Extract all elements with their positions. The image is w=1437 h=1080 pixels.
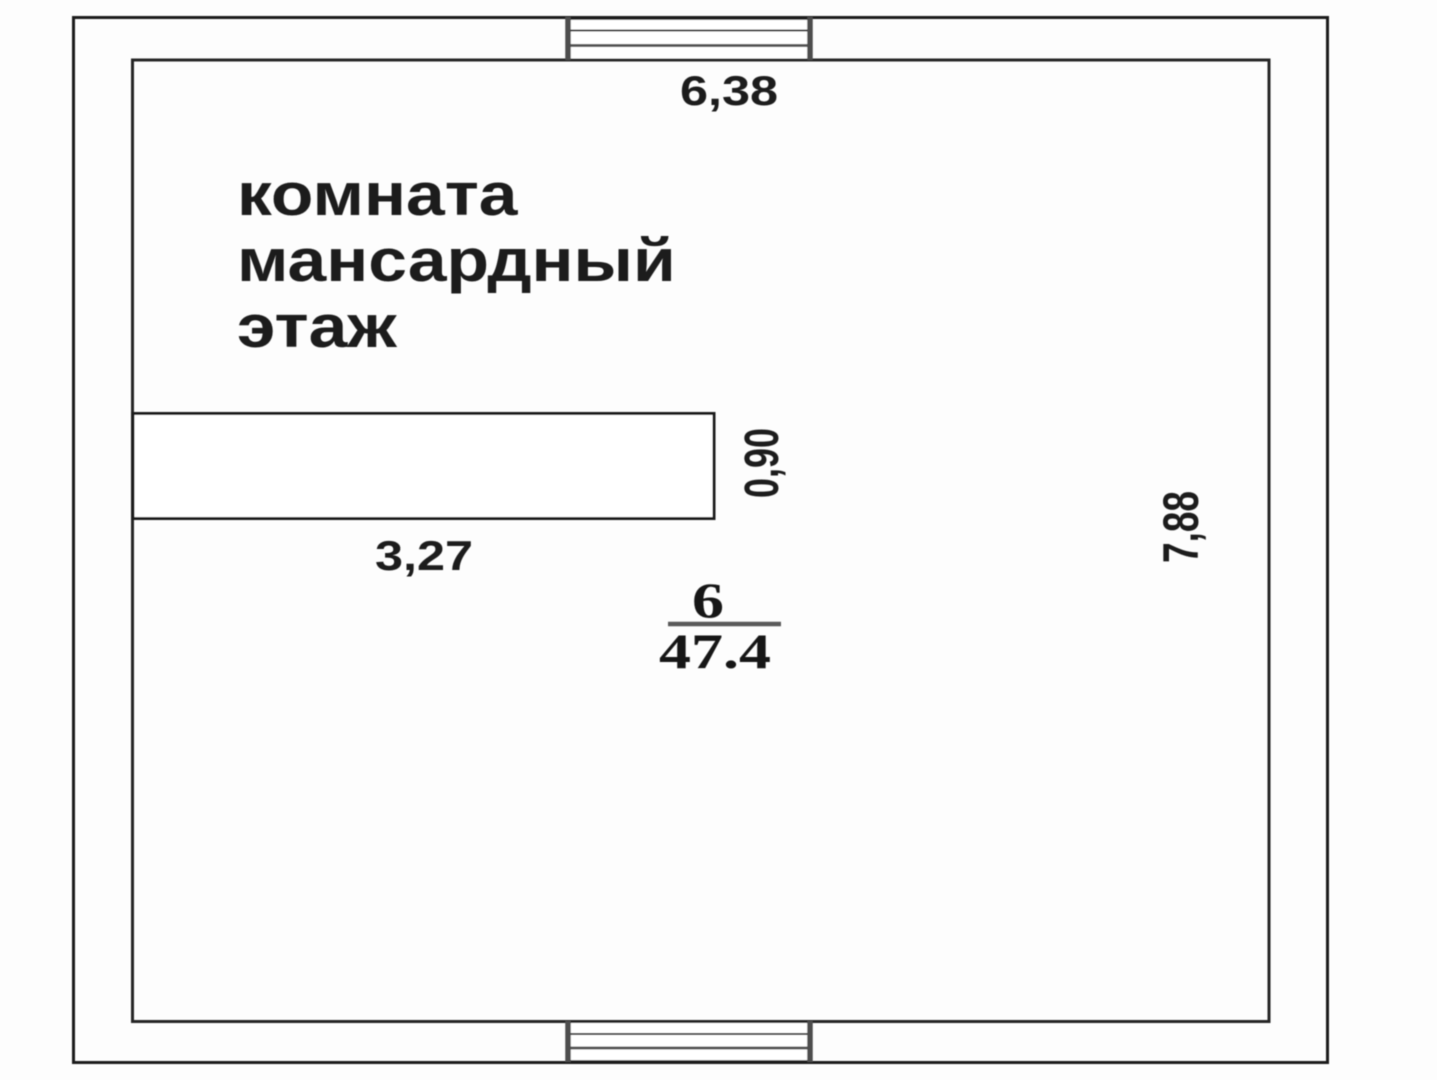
svg-text:комната: комната bbox=[237, 161, 518, 228]
svg-text:47.4: 47.4 bbox=[659, 624, 771, 679]
svg-text:мансардный: мансардный bbox=[237, 227, 676, 294]
svg-text:7,88: 7,88 bbox=[1154, 491, 1210, 563]
svg-text:6,38: 6,38 bbox=[680, 67, 778, 114]
svg-text:этаж: этаж bbox=[237, 293, 398, 360]
svg-text:3,27: 3,27 bbox=[375, 532, 473, 579]
svg-text:0,90: 0,90 bbox=[735, 428, 789, 498]
svg-text:6: 6 bbox=[692, 573, 724, 628]
